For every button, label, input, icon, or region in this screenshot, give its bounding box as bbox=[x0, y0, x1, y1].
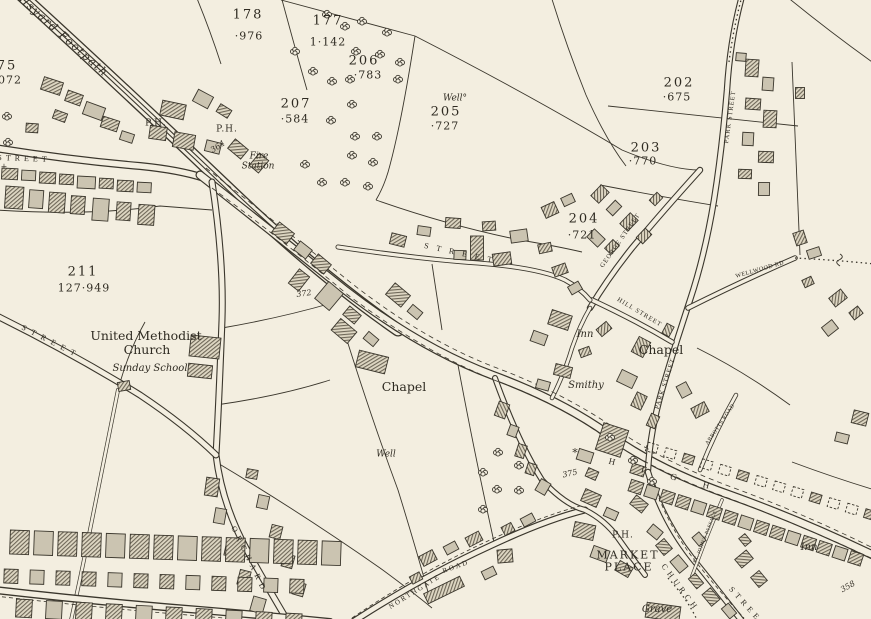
terrace-row-southwest-upper bbox=[10, 530, 342, 566]
parish-boundary-dotted bbox=[668, 0, 871, 619]
chapel-east-building bbox=[631, 336, 650, 357]
inn-central-building bbox=[548, 310, 573, 331]
trees bbox=[3, 10, 657, 513]
smithy-building bbox=[553, 364, 572, 379]
map-canvas: 1771·142178·976206·783205·727207·584202·… bbox=[0, 0, 871, 619]
methodist-church-building bbox=[189, 335, 221, 359]
buildings bbox=[1, 53, 871, 619]
chapel-central-building bbox=[355, 350, 388, 374]
fire-station-building bbox=[228, 139, 249, 159]
map-drawing bbox=[0, 0, 871, 619]
sunday-school-building bbox=[187, 363, 212, 378]
boundary-squiggle bbox=[837, 254, 843, 266]
